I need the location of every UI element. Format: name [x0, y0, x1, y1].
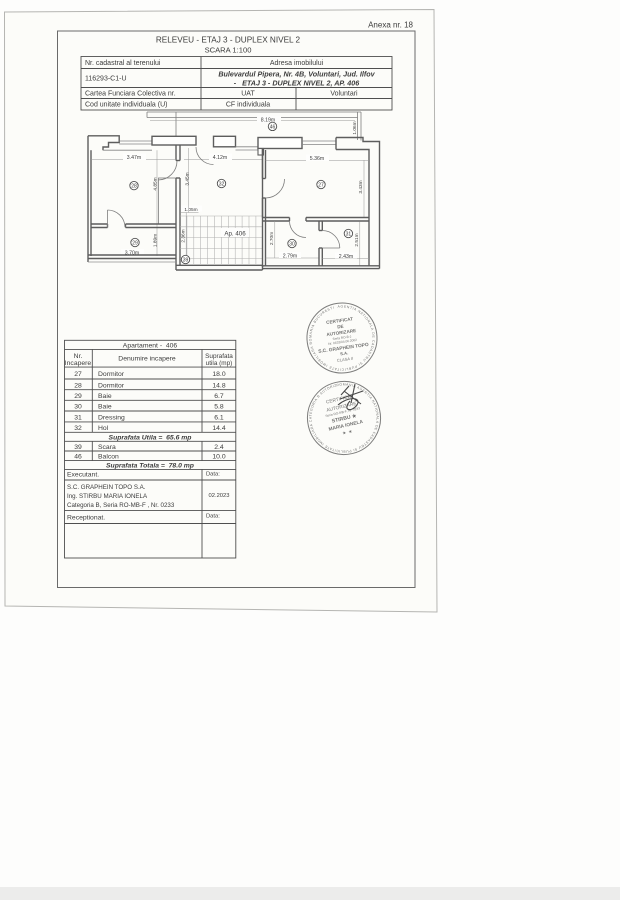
- svg-text:Cod unitate individuala (U): Cod unitate individuala (U): [85, 102, 168, 109]
- svg-text:1.06m: 1.06m: [352, 121, 358, 134]
- svg-text:SCARA 1:100: SCARA 1:100: [205, 46, 252, 55]
- svg-text:CF individuala: CF individuala: [226, 102, 270, 109]
- svg-text:5.36m: 5.36m: [310, 156, 324, 162]
- svg-text:1.05m: 1.05m: [184, 207, 197, 213]
- svg-text:- ETAJ 3 - DUPLEX NIVEL 2, A: - ETAJ 3 - DUPLEX NIVEL 2, AP. 406: [234, 79, 361, 88]
- svg-text:Anexa nr. 18: Anexa nr. 18: [368, 21, 413, 30]
- svg-text:Nr.: Nr.: [74, 353, 83, 360]
- svg-text:14.8: 14.8: [212, 382, 225, 389]
- svg-text:Denumire incapere: Denumire incapere: [118, 356, 176, 363]
- svg-text:Suprafata Utila = 65.6 mp: Suprafata Utila = 65.6 mp: [109, 435, 192, 442]
- svg-text:32: 32: [74, 425, 82, 432]
- svg-text:2.79m: 2.79m: [283, 253, 297, 259]
- svg-text:Hol: Hol: [98, 425, 109, 432]
- svg-text:32: 32: [219, 182, 225, 188]
- svg-text:3.43m: 3.43m: [358, 180, 364, 193]
- svg-text:4.85m: 4.85m: [153, 177, 159, 190]
- svg-text:6.1: 6.1: [214, 414, 224, 421]
- svg-text:2.4: 2.4: [214, 444, 224, 451]
- svg-text:Balcon: Balcon: [98, 453, 119, 460]
- svg-text:Executant.: Executant.: [67, 472, 99, 479]
- svg-text:5.8: 5.8: [214, 404, 224, 411]
- svg-text:2.43m: 2.43m: [339, 254, 353, 260]
- svg-text:2.51m: 2.51m: [354, 233, 360, 246]
- svg-text:Cartea Funciara Colectiva nr.: Cartea Funciara Colectiva nr.: [85, 91, 176, 98]
- svg-text:31: 31: [74, 414, 82, 421]
- svg-text:Suprafata: Suprafata: [205, 353, 233, 360]
- svg-text:2.70m: 2.70m: [269, 232, 275, 245]
- svg-text:29: 29: [74, 393, 82, 400]
- svg-text:Bulevardul Pipera, Nr. 4B, Vol: Bulevardul Pipera, Nr. 4B, Voluntari, Ju…: [218, 70, 375, 79]
- svg-text:10.0: 10.0: [212, 453, 225, 460]
- svg-text:28: 28: [74, 382, 82, 389]
- svg-text:18.0: 18.0: [212, 371, 225, 378]
- svg-text:UAT: UAT: [241, 91, 255, 98]
- svg-text:3.45m: 3.45m: [185, 172, 191, 185]
- svg-text:116293-C1-U: 116293-C1-U: [85, 76, 127, 83]
- svg-text:46: 46: [270, 124, 276, 130]
- svg-text:Voluntari: Voluntari: [330, 91, 358, 98]
- svg-text:Apartament - 406: Apartament - 406: [123, 343, 178, 350]
- svg-text:29: 29: [132, 241, 138, 247]
- svg-text:Baie: Baie: [98, 393, 112, 400]
- svg-text:Dressing: Dressing: [98, 414, 125, 421]
- svg-text:Data:: Data:: [206, 472, 220, 478]
- svg-text:27: 27: [74, 371, 82, 378]
- svg-text:Ing. STIRBU MARIA IONELA: Ing. STIRBU MARIA IONELA: [67, 493, 148, 500]
- svg-text:28: 28: [131, 184, 137, 190]
- svg-text:Incapere: Incapere: [65, 360, 92, 367]
- svg-text:Categoria B, Seria RO-MB-F , N: Categoria B, Seria RO-MB-F , Nr. 0233: [67, 502, 175, 509]
- svg-text:Scara: Scara: [98, 444, 116, 451]
- svg-text:Adresa imobilului: Adresa imobilului: [270, 60, 324, 67]
- svg-text:RELEVEU - ETAJ 3 - DUPLEX NIVE: RELEVEU - ETAJ 3 - DUPLEX NIVEL 2: [156, 36, 301, 45]
- svg-text:S.C. GRAPHEIN TOPO S.A.: S.C. GRAPHEIN TOPO S.A.: [67, 484, 146, 491]
- svg-text:02.2023: 02.2023: [209, 493, 230, 499]
- svg-text:39: 39: [74, 444, 82, 451]
- svg-text:1.89m: 1.89m: [153, 234, 159, 247]
- svg-text:31: 31: [346, 232, 352, 238]
- svg-text:Receptionat.: Receptionat.: [67, 515, 105, 522]
- svg-text:27: 27: [318, 183, 324, 189]
- svg-text:30: 30: [289, 242, 295, 248]
- svg-text:DE: DE: [337, 324, 344, 330]
- svg-text:14.4: 14.4: [212, 425, 225, 432]
- svg-text:Nr. cadastral al terenului: Nr. cadastral al terenului: [85, 60, 161, 67]
- svg-text:Ap. 406: Ap. 406: [224, 231, 246, 238]
- svg-text:3.47m: 3.47m: [127, 155, 141, 161]
- svg-text:Dormitor: Dormitor: [98, 382, 125, 389]
- svg-text:4.12m: 4.12m: [213, 155, 227, 161]
- svg-text:Dormitor: Dormitor: [98, 371, 125, 378]
- svg-text:30: 30: [74, 404, 82, 411]
- svg-text:Baie: Baie: [98, 404, 112, 411]
- svg-text:Data:: Data:: [206, 514, 220, 520]
- svg-text:46: 46: [74, 453, 82, 460]
- svg-text:Suprafata Totala = 78.0 mp: Suprafata Totala = 78.0 mp: [106, 462, 194, 469]
- svg-text:2.36m: 2.36m: [180, 229, 186, 242]
- svg-text:39: 39: [183, 258, 189, 264]
- svg-text:utila (mp): utila (mp): [206, 360, 233, 367]
- svg-text:6.7: 6.7: [214, 393, 224, 400]
